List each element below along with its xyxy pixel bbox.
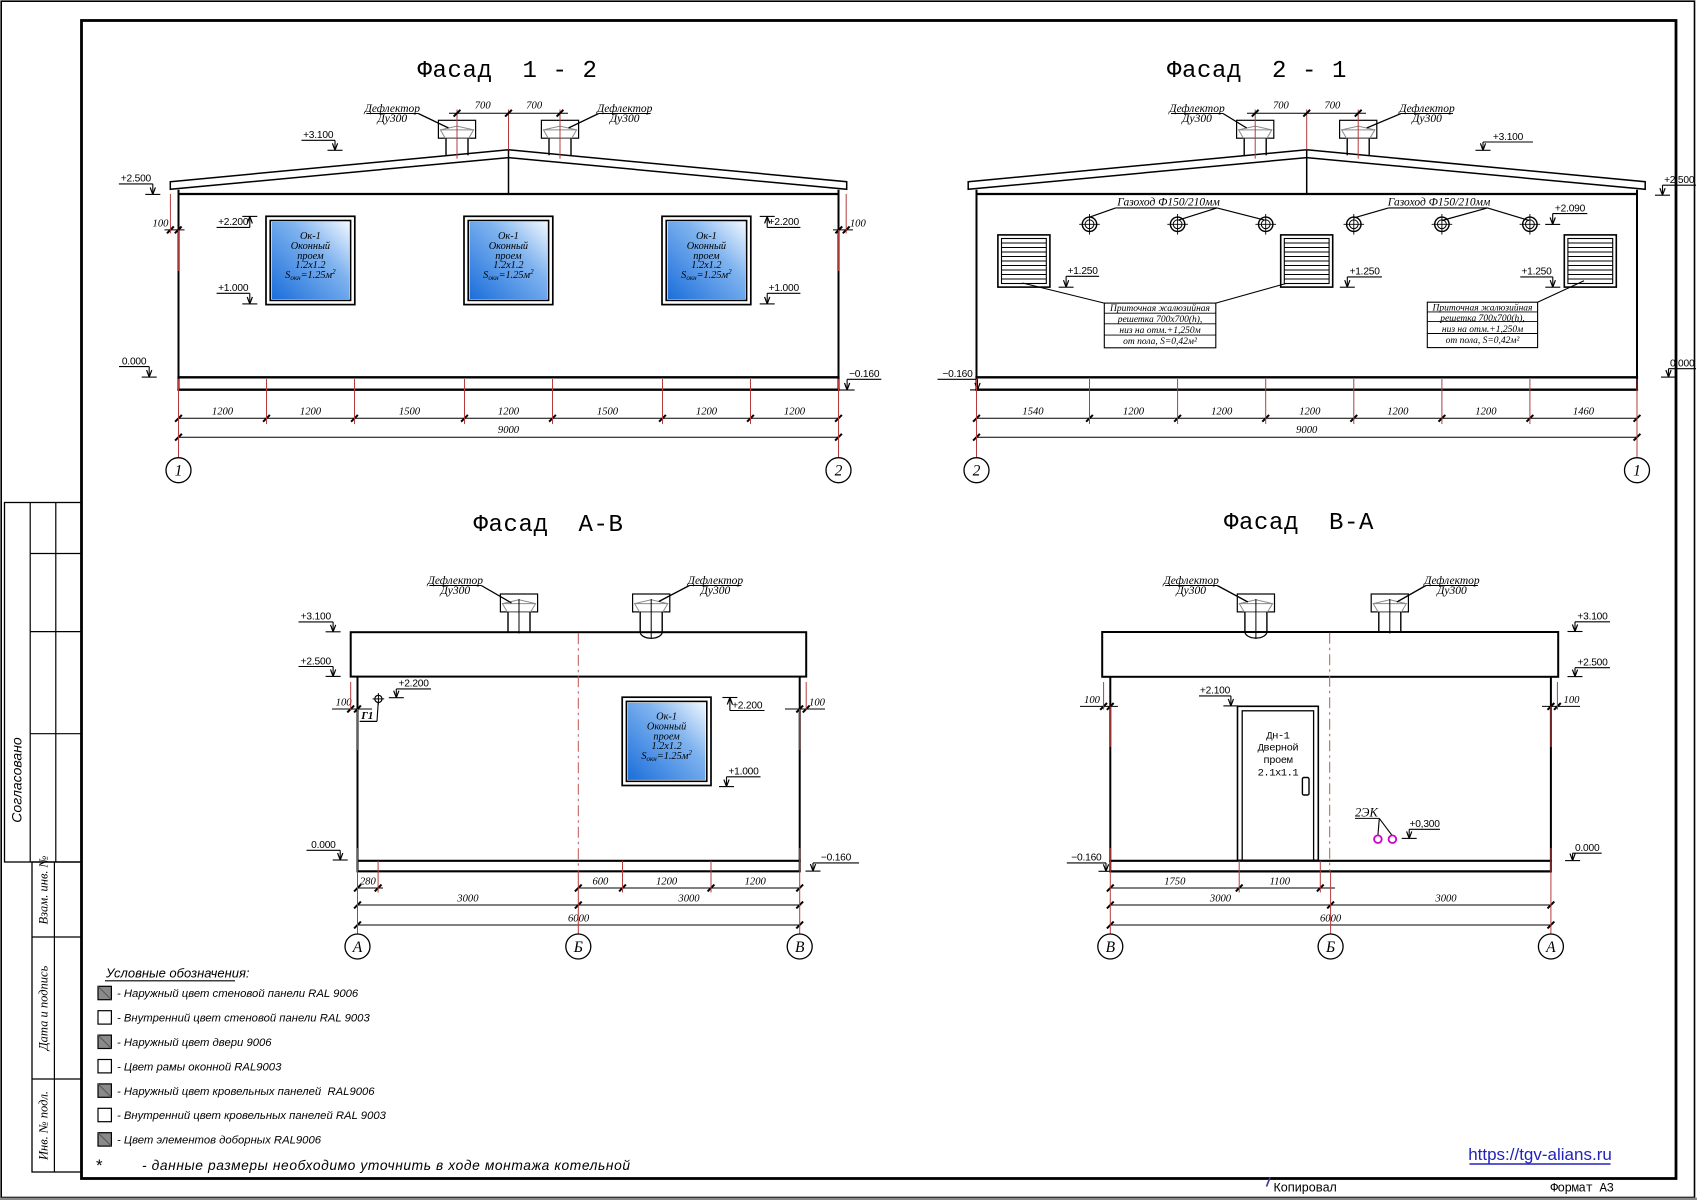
svg-text:- Цвет рамы оконной RAL9003: - Цвет рамы оконной RAL9003 xyxy=(117,1061,282,1073)
svg-text:*: * xyxy=(96,1156,103,1175)
svg-text:низ на отм.+1,250м: низ на отм.+1,250м xyxy=(1442,325,1523,335)
svg-text:+2.500: +2.500 xyxy=(1577,658,1608,669)
svg-text:1200: 1200 xyxy=(1475,406,1497,417)
svg-text:9000: 9000 xyxy=(498,425,520,436)
svg-text:Инв. № подл.: Инв. № подл. xyxy=(37,1091,51,1161)
svg-text:Г1: Г1 xyxy=(360,710,373,722)
svg-text:6000: 6000 xyxy=(568,914,590,925)
svg-text:+1.250: +1.250 xyxy=(1067,266,1098,277)
svg-text:2: 2 xyxy=(835,463,843,480)
svg-text:700: 700 xyxy=(1324,101,1341,112)
svg-text:Дн-1: Дн-1 xyxy=(1266,730,1289,742)
svg-text:0.000: 0.000 xyxy=(122,356,147,367)
svg-text:Б: Б xyxy=(1325,939,1335,956)
svg-text:Газоход Ф150/210мм: Газоход Ф150/210мм xyxy=(1387,196,1491,208)
svg-text:+1.000: +1.000 xyxy=(728,767,759,778)
svg-text:700: 700 xyxy=(1273,101,1290,112)
svg-text:- Наружный цвет двери 9006: - Наружный цвет двери 9006 xyxy=(117,1037,272,1049)
svg-text:1200: 1200 xyxy=(498,406,520,417)
svg-text:1200: 1200 xyxy=(1387,406,1409,417)
svg-text:1200: 1200 xyxy=(745,877,767,888)
svg-text:Б: Б xyxy=(573,939,583,956)
svg-text:100: 100 xyxy=(336,698,353,709)
svg-text:- Наружный цвет кровельных пан: - Наружный цвет кровельных панелей RAL90… xyxy=(117,1086,375,1098)
svg-text:+3.100: +3.100 xyxy=(1493,132,1524,143)
svg-text:- Внутренний цвет кровельных п: - Внутренний цвет кровельных панелей RAL… xyxy=(117,1110,387,1122)
svg-text:9000: 9000 xyxy=(1296,425,1318,436)
svg-text:- данные размеры необходимо ут: - данные размеры необходимо уточнить в х… xyxy=(142,1158,631,1173)
svg-text:Фасад 2 - 1: Фасад 2 - 1 xyxy=(1167,58,1347,85)
svg-text:1200: 1200 xyxy=(696,406,718,417)
svg-text:проем: проем xyxy=(1263,755,1292,767)
svg-text:Ду300: Ду300 xyxy=(700,585,731,597)
svg-text:Взам. инв. №: Взам. инв. № xyxy=(37,855,51,924)
svg-text:В: В xyxy=(795,939,805,956)
svg-text:+2.100: +2.100 xyxy=(1200,686,1231,697)
svg-text:+1.000: +1.000 xyxy=(218,283,249,294)
svg-text:3000: 3000 xyxy=(677,894,700,905)
svg-text:1500: 1500 xyxy=(597,406,619,417)
svg-text:+2.200: +2.200 xyxy=(218,217,249,228)
svg-text:100: 100 xyxy=(1084,695,1101,706)
svg-text:Дверной: Дверной xyxy=(1258,743,1299,755)
svg-text:100: 100 xyxy=(809,698,826,709)
svg-text:+1.250: +1.250 xyxy=(1521,267,1552,278)
svg-text:1200: 1200 xyxy=(1211,406,1233,417)
svg-text:2ЭК: 2ЭК xyxy=(1355,806,1378,820)
svg-text:700: 700 xyxy=(475,101,492,112)
svg-text:Газоход Ф150/210мм: Газоход Ф150/210мм xyxy=(1116,196,1220,208)
svg-text:+2.200: +2.200 xyxy=(398,679,429,690)
svg-text:0.000: 0.000 xyxy=(311,840,336,851)
svg-text:−0.160: −0.160 xyxy=(849,369,880,380)
svg-text:2: 2 xyxy=(973,463,981,480)
svg-text:Фасад А-В: Фасад А-В xyxy=(473,512,623,539)
svg-text:+3.100: +3.100 xyxy=(301,612,332,623)
svg-text:1200: 1200 xyxy=(784,406,806,417)
svg-text:Фасад В-А: Фасад В-А xyxy=(1224,510,1374,537)
svg-text:https://tgv-alians.ru: https://tgv-alians.ru xyxy=(1468,1145,1612,1164)
svg-text:Ду300: Ду300 xyxy=(1175,585,1206,597)
svg-text:- Наружный цвет стеновой панел: - Наружный цвет стеновой панели RAL 9006 xyxy=(117,988,359,1000)
svg-text:Дата и подпись: Дата и подпись xyxy=(37,965,51,1051)
svg-text:- Внутренний цвет стеновой пан: - Внутренний цвет стеновой панели RAL 90… xyxy=(117,1013,370,1025)
svg-text:100: 100 xyxy=(153,218,170,229)
svg-text:решетка 700х700(h),: решетка 700х700(h), xyxy=(1117,314,1203,325)
svg-text:от пола, S=0,42м²: от пола, S=0,42м² xyxy=(1123,337,1197,347)
svg-text:+0,300: +0,300 xyxy=(1409,819,1440,830)
svg-text:решетка 700х700(h),: решетка 700х700(h), xyxy=(1439,313,1525,324)
svg-text:600: 600 xyxy=(592,877,609,888)
svg-text:1200: 1200 xyxy=(1299,406,1321,417)
svg-text:Ду300: Ду300 xyxy=(1181,113,1212,125)
svg-text:−0.160: −0.160 xyxy=(942,369,973,380)
svg-text:- Цвет элементов доборных RAL9: - Цвет элементов доборных RAL9006 xyxy=(117,1135,322,1147)
svg-text:3000: 3000 xyxy=(1209,894,1232,905)
svg-text:700: 700 xyxy=(526,101,543,112)
svg-text:+3.100: +3.100 xyxy=(1577,612,1608,623)
svg-text:В: В xyxy=(1106,939,1116,956)
svg-text:Ду300: Ду300 xyxy=(439,585,470,597)
svg-text:0.000: 0.000 xyxy=(1575,843,1600,854)
svg-text:−0.160: −0.160 xyxy=(1071,853,1102,864)
svg-text:1200: 1200 xyxy=(212,406,234,417)
svg-text:Приточная жалюзийная: Приточная жалюзийная xyxy=(1109,303,1210,314)
svg-text:2.1х1.1: 2.1х1.1 xyxy=(1258,768,1299,780)
svg-text:Ду300: Ду300 xyxy=(609,113,640,125)
svg-text:+2.200: +2.200 xyxy=(769,217,800,228)
svg-text:А: А xyxy=(1545,939,1556,956)
svg-text:+2.500: +2.500 xyxy=(301,656,332,667)
svg-text:1100: 1100 xyxy=(1270,877,1291,888)
svg-text:Ду300: Ду300 xyxy=(376,113,407,125)
svg-text:А: А xyxy=(352,939,363,956)
svg-text:+2.200: +2.200 xyxy=(732,700,763,711)
svg-text:Приточная жалюзийная: Приточная жалюзийная xyxy=(1432,302,1533,313)
svg-text:Условные обозначения:: Условные обозначения: xyxy=(105,966,250,981)
svg-text:100: 100 xyxy=(1564,695,1581,706)
svg-text:1540: 1540 xyxy=(1022,406,1044,417)
svg-text:1500: 1500 xyxy=(399,406,421,417)
svg-text:1200: 1200 xyxy=(300,406,322,417)
svg-text:0.000: 0.000 xyxy=(1670,359,1695,370)
svg-text:−0.160: −0.160 xyxy=(821,853,852,864)
svg-text:Ду300: Ду300 xyxy=(1436,585,1467,597)
svg-text:1: 1 xyxy=(1633,463,1641,480)
svg-text:1200: 1200 xyxy=(1123,406,1145,417)
svg-text:+1.000: +1.000 xyxy=(769,283,800,294)
svg-text:+3.100: +3.100 xyxy=(303,130,334,141)
svg-text:+2.500: +2.500 xyxy=(121,174,152,185)
svg-text:3000: 3000 xyxy=(456,894,479,905)
svg-text:280: 280 xyxy=(360,877,377,888)
svg-text:3000: 3000 xyxy=(1434,894,1457,905)
svg-text:от пола, S=0,42м²: от пола, S=0,42м² xyxy=(1446,336,1520,346)
svg-text:1460: 1460 xyxy=(1573,406,1595,417)
svg-text:низ на отм.+1,250м: низ на отм.+1,250м xyxy=(1119,326,1200,336)
svg-text:+2.090: +2.090 xyxy=(1555,203,1586,214)
svg-text:1200: 1200 xyxy=(656,877,678,888)
svg-text:100: 100 xyxy=(850,218,867,229)
svg-text:Фасад 1 - 2: Фасад 1 - 2 xyxy=(417,58,597,85)
svg-text:1: 1 xyxy=(175,463,183,480)
svg-text:Согласовано: Согласовано xyxy=(9,737,25,823)
svg-text:Ду300: Ду300 xyxy=(1411,113,1442,125)
svg-text:Формат А3: Формат А3 xyxy=(1550,1182,1613,1196)
svg-text:1750: 1750 xyxy=(1164,877,1186,888)
svg-text:Копировал: Копировал xyxy=(1273,1182,1336,1196)
svg-text:+2.500: +2.500 xyxy=(1664,175,1695,186)
svg-text:+1.250: +1.250 xyxy=(1349,267,1380,278)
